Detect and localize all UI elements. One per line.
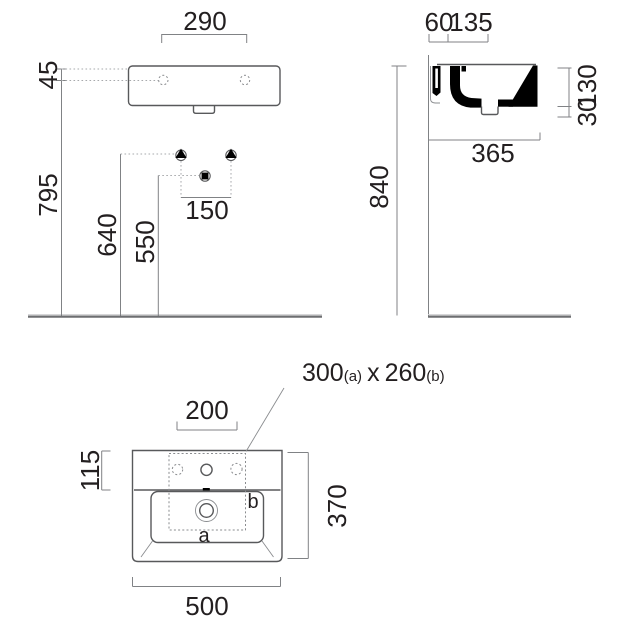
dim-795-label: 795 [33,173,63,216]
drain-recess-icon [196,500,218,522]
dim-130-30-bracket [558,68,572,117]
cutout-separator: x [367,359,380,387]
dim-290-label: 290 [183,6,226,36]
plan-view: a b 300(a)x260(b) 200 115 370 500 [75,359,445,621]
marker-b-label: b [247,491,258,513]
dim-115-label: 115 [75,450,105,491]
dim-840-label: 840 [364,165,394,208]
dim-550-label: 550 [130,220,160,263]
cutout-b-suffix: (b) [426,368,444,385]
dim-500-label: 500 [185,591,228,621]
dim-135-label: 135 [449,7,492,37]
drain-hole-icon [200,504,214,518]
waste-outlet-marker-icon [202,173,209,180]
section-overflow-wall [450,66,482,108]
tap-hole-right-icon [240,75,249,84]
dim-200-label: 200 [185,395,228,425]
dim-30-label: 30 [572,98,602,127]
bowl-chamfer-left [141,541,153,557]
dim-150-label: 150 [185,195,228,225]
dim-45-label: 45 [33,61,63,90]
marker-a-label: a [198,525,210,547]
cutout-size-label: 300(a)x260(b) [302,359,445,387]
front-view: 290 45 795 640 550 150 [28,6,322,317]
cutout-b-value: 260 [385,359,427,387]
technical-drawing: 290 45 795 640 550 150 [0,0,630,630]
dim-370-bracket [288,453,309,559]
waste-trap-outline [194,106,215,114]
section-overflow-nub [462,66,467,72]
side-view: 60 135 130 30 365 840 [364,7,602,317]
cutout-a-value: 300 [302,359,344,387]
plan-tap-hole-left-icon [172,464,182,474]
plan-tap-hole-right-icon [231,463,242,474]
tap-hole-left-icon [159,75,168,84]
plan-tap-hole-center-icon [201,464,212,475]
washbasin-spec-sheet: 290 45 795 640 550 150 [0,0,630,630]
dim-365-label: 365 [471,138,514,168]
dim-500-bracket [133,577,281,587]
cutout-a-suffix: (a) [344,368,362,385]
drain-outlet-outline [482,107,499,115]
overflow-slot-icon [203,488,210,491]
bowl-chamfer-right [262,541,274,557]
dim-370-label: 370 [322,484,352,527]
section-front-wall [509,66,538,107]
cutout-leader-line [246,388,284,452]
dim-640-label: 640 [92,213,122,256]
mount-channel-slot [435,69,438,89]
basin-front-outline [129,66,281,106]
